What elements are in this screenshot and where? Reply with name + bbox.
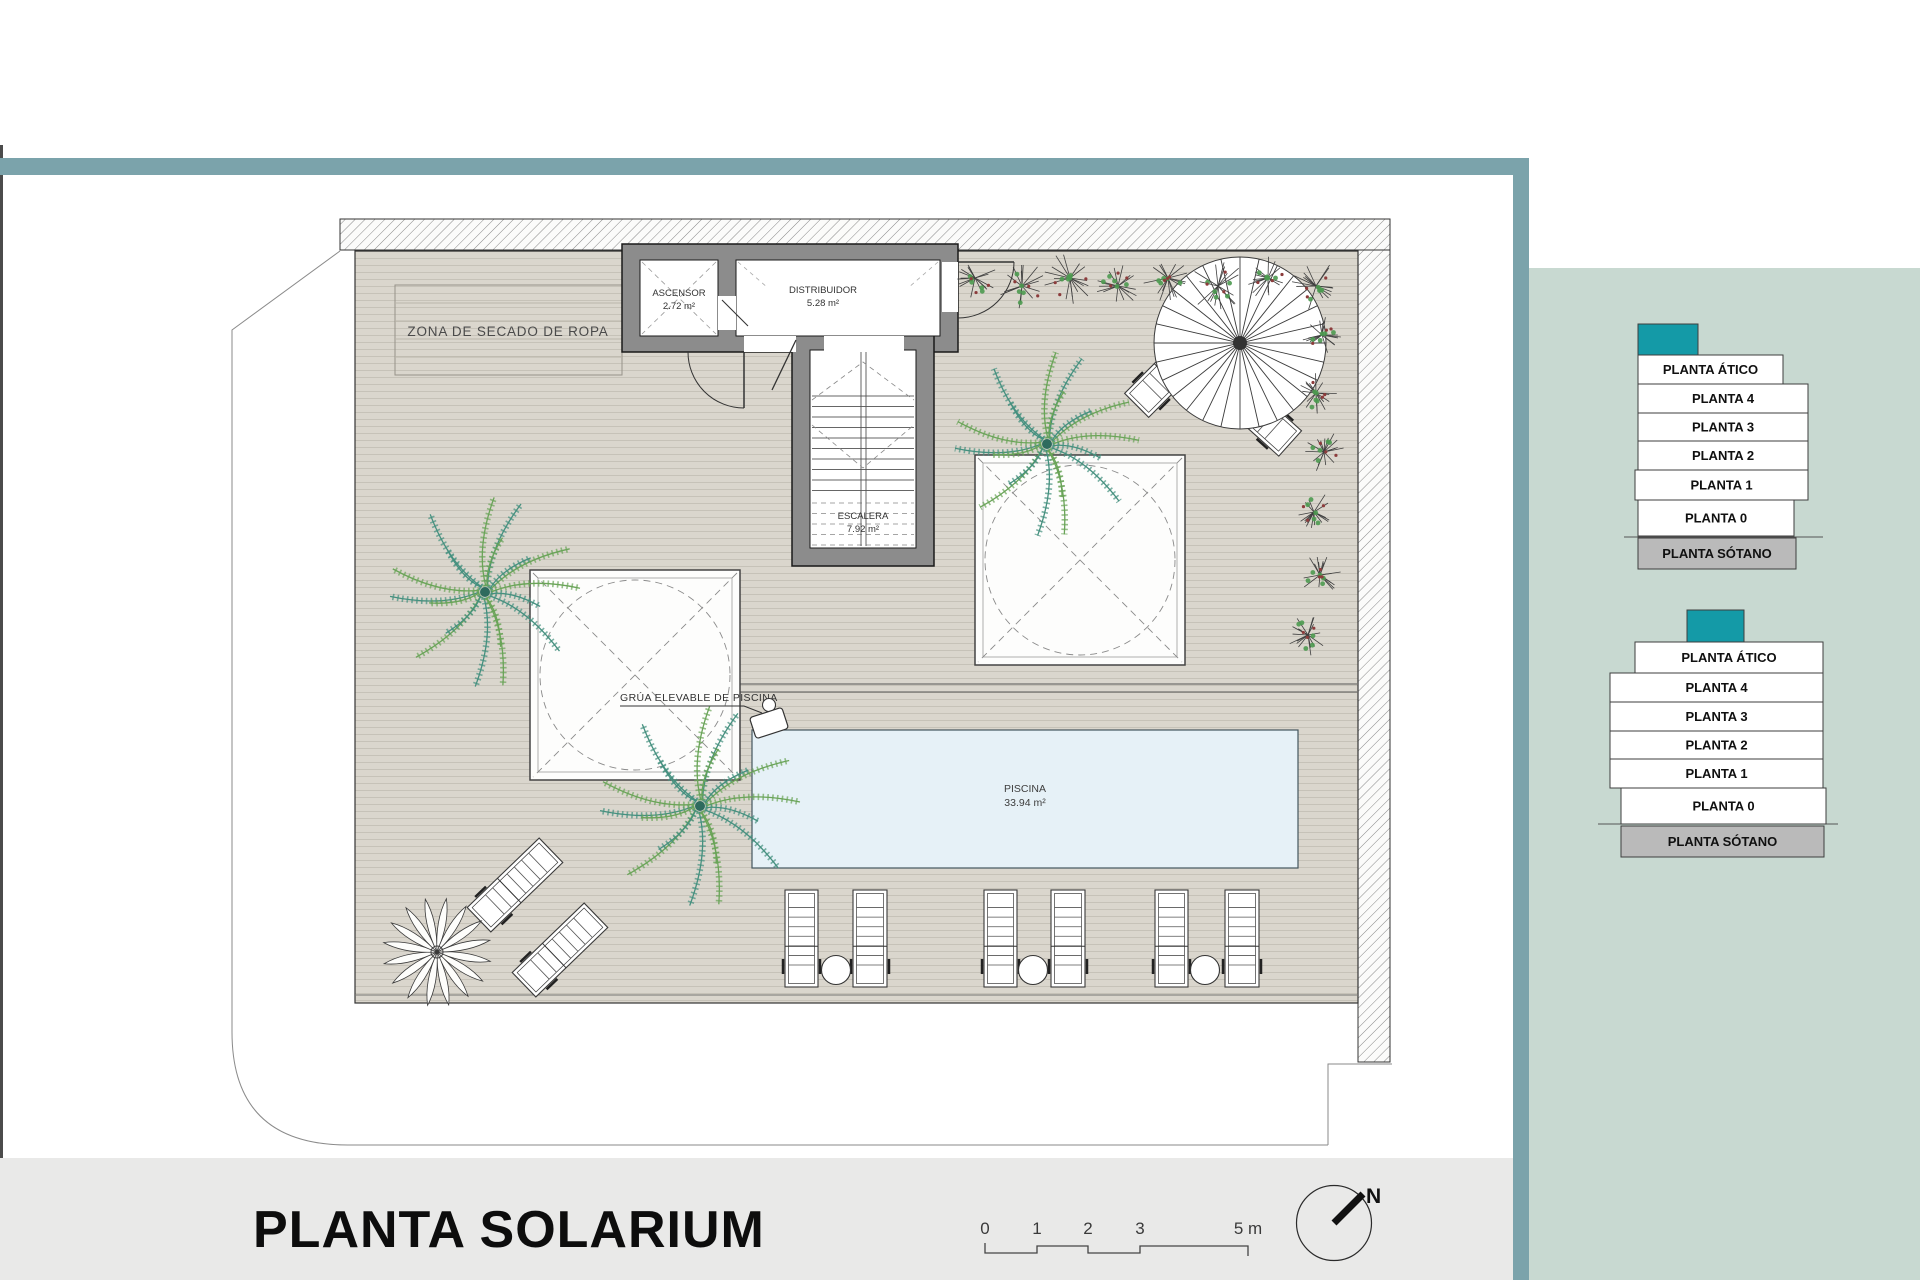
sun-lounger	[1153, 890, 1190, 987]
stack-highlight-solarium	[1638, 324, 1698, 355]
building-stack: PLANTA ÁTICOPLANTA 4PLANTA 3PLANTA 2PLAN…	[1624, 324, 1823, 569]
scale-tick-2: 2	[1083, 1219, 1092, 1238]
stack-level-label: PLANTA 0	[1692, 799, 1754, 814]
stack-level-label: PLANTA SÓTANO	[1668, 834, 1778, 849]
pool: PISCINA 33.94 m²	[752, 730, 1298, 868]
page: PLANTA SOLARIUM	[0, 0, 1920, 1280]
sun-lounger	[783, 890, 820, 987]
elevator-label: ASCENSOR	[652, 288, 705, 299]
elevator-area-label: 2.72 m²	[663, 301, 695, 312]
side-table	[1191, 956, 1220, 985]
scale-tick-5m: 5 m	[1234, 1219, 1262, 1238]
floor-plan-drawing: ZONA DE SECADO DE ROPA PISCINA 33.94 m² …	[0, 0, 1920, 1280]
stairs-label: ESCALERA	[838, 511, 889, 522]
pool-lift-label: GRÚA ELEVABLE DE PISCINA	[620, 691, 778, 704]
scale-tick-3: 3	[1135, 1219, 1144, 1238]
stack-level-label: PLANTA 1	[1690, 478, 1752, 493]
drying-area-label: ZONA DE SECADO DE ROPA	[407, 324, 608, 339]
stack-level-label: PLANTA SÓTANO	[1662, 546, 1772, 561]
level-stacks: PLANTA ÁTICOPLANTA 4PLANTA 3PLANTA 2PLAN…	[1598, 324, 1838, 857]
sun-lounger	[982, 890, 1019, 987]
skylight-left	[530, 570, 740, 780]
stack-level-label: PLANTA 4	[1685, 680, 1748, 695]
stack-level-label: PLANTA 1	[1685, 766, 1747, 781]
scale-bar: 0 1 2 3 5 m	[980, 1219, 1262, 1256]
stack-level-label: PLANTA 3	[1692, 420, 1754, 435]
scale-tick-1: 1	[1032, 1219, 1041, 1238]
distributor-area-label: 5.28 m²	[807, 298, 839, 309]
stack-level-label: PLANTA ÁTICO	[1663, 362, 1758, 377]
stack-level-label: PLANTA ÁTICO	[1681, 650, 1776, 665]
sun-lounger	[1223, 890, 1261, 987]
stairs-area-label: 7.92 m²	[847, 524, 879, 535]
sun-lounger	[1049, 890, 1087, 987]
side-table	[1019, 956, 1048, 985]
side-table	[822, 956, 851, 985]
stack-level-label: PLANTA 4	[1692, 391, 1755, 406]
stack-level-label: PLANTA 2	[1685, 738, 1747, 753]
pool-area-label: 33.94 m²	[1004, 797, 1046, 809]
building-stack: PLANTA ÁTICOPLANTA 4PLANTA 3PLANTA 2PLAN…	[1598, 610, 1838, 857]
north-arrow: N	[1297, 1185, 1382, 1261]
pool-label: PISCINA	[1004, 783, 1046, 795]
stack-highlight-solarium	[1687, 610, 1744, 642]
scale-tick-0: 0	[980, 1219, 989, 1238]
stack-level-label: PLANTA 0	[1685, 511, 1747, 526]
stack-level-label: PLANTA 3	[1685, 709, 1747, 724]
sun-lounger	[851, 890, 889, 987]
distributor-label: DISTRIBUIDOR	[789, 285, 857, 296]
stack-level-label: PLANTA 2	[1692, 448, 1754, 463]
north-label: N	[1366, 1185, 1381, 1208]
